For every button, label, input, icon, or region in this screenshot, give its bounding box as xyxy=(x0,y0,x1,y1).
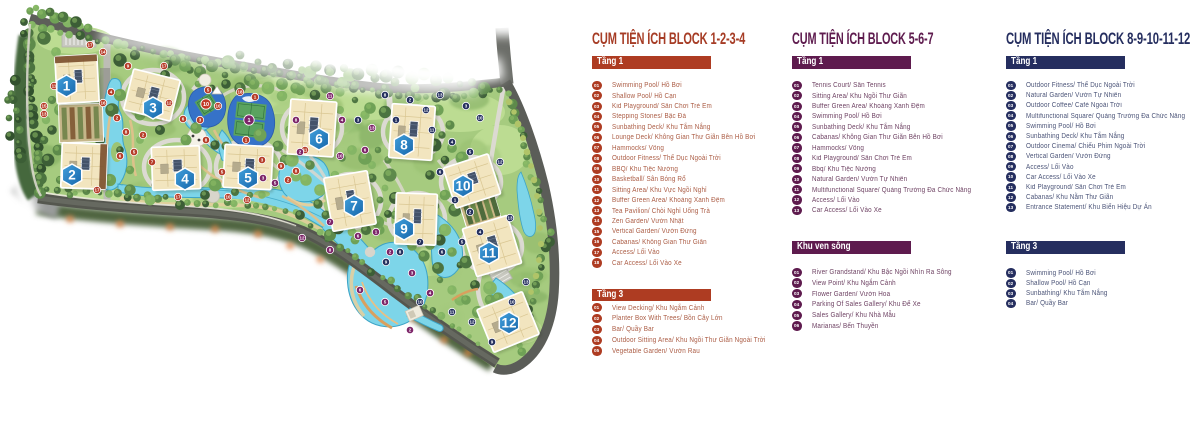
svg-text:4: 4 xyxy=(181,171,189,186)
svg-text:3: 3 xyxy=(149,100,157,115)
svg-text:10: 10 xyxy=(225,195,231,200)
svg-text:10: 10 xyxy=(509,300,515,305)
svg-text:10: 10 xyxy=(477,116,483,121)
svg-text:11: 11 xyxy=(482,245,497,260)
svg-text:18: 18 xyxy=(237,90,243,95)
svg-text:16: 16 xyxy=(100,101,106,106)
svg-text:13: 13 xyxy=(437,93,443,98)
svg-text:13: 13 xyxy=(507,216,513,221)
svg-text:10: 10 xyxy=(455,178,470,193)
svg-text:12: 12 xyxy=(423,108,429,113)
svg-text:12: 12 xyxy=(501,315,516,330)
svg-text:14: 14 xyxy=(100,50,106,55)
svg-text:6: 6 xyxy=(315,131,323,146)
svg-text:10: 10 xyxy=(203,102,209,108)
svg-text:13: 13 xyxy=(41,112,47,117)
svg-text:17: 17 xyxy=(94,188,100,193)
svg-text:17: 17 xyxy=(87,43,93,48)
svg-text:12: 12 xyxy=(469,320,475,325)
svg-text:5: 5 xyxy=(244,170,252,185)
svg-text:2: 2 xyxy=(68,167,76,182)
svg-text:8: 8 xyxy=(400,137,408,152)
svg-text:11: 11 xyxy=(450,310,455,315)
svg-text:12: 12 xyxy=(497,160,503,165)
svg-text:12: 12 xyxy=(244,198,250,203)
svg-text:7: 7 xyxy=(350,198,358,213)
svg-text:13: 13 xyxy=(523,280,529,285)
svg-text:11: 11 xyxy=(328,94,333,99)
svg-text:17: 17 xyxy=(161,64,167,69)
svg-text:17: 17 xyxy=(175,195,181,200)
svg-text:1: 1 xyxy=(63,78,71,93)
svg-text:10: 10 xyxy=(337,154,343,159)
svg-text:12: 12 xyxy=(166,101,172,106)
svg-text:10: 10 xyxy=(215,104,221,109)
svg-text:10: 10 xyxy=(417,300,423,305)
svg-text:13: 13 xyxy=(369,126,375,131)
svg-text:9: 9 xyxy=(400,221,408,236)
svg-text:11: 11 xyxy=(430,128,435,133)
svg-text:1: 1 xyxy=(247,118,250,124)
svg-text:12: 12 xyxy=(299,236,305,241)
svg-text:15: 15 xyxy=(41,104,47,109)
